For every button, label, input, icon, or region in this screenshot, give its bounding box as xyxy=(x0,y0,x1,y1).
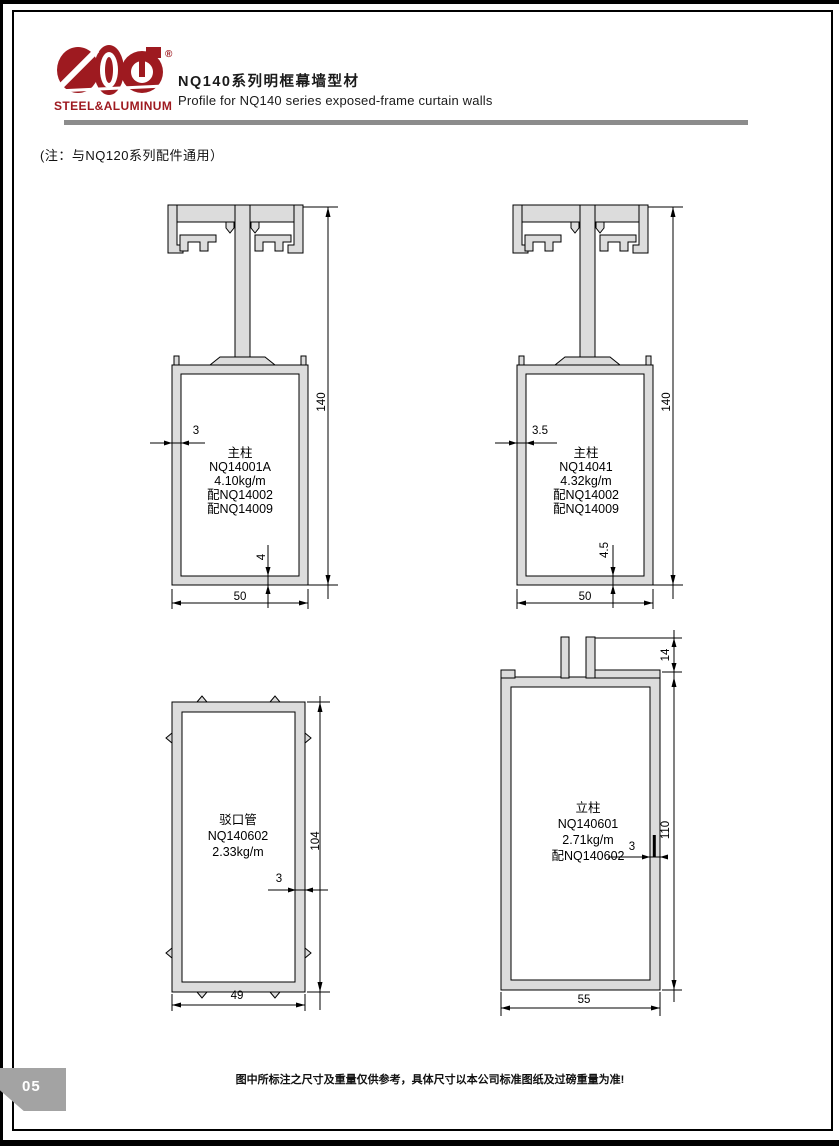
dim-bottom-wall: 4.5 xyxy=(599,542,611,558)
page-title-chinese: NQ140系列明框幕墙型材 xyxy=(178,70,359,91)
page-bottom-edge xyxy=(0,1140,839,1146)
dim-width: 50 xyxy=(579,591,592,603)
dim-tab-height: 14 xyxy=(660,649,672,662)
logo-wordmark: STEEL&ALUMINUM xyxy=(54,99,170,113)
page-top-edge xyxy=(0,0,839,4)
profile-accessory: 配NQ14002 xyxy=(207,488,273,502)
profile-weight: 2.71kg/m xyxy=(552,832,625,848)
registered-trademark-mark: ® xyxy=(165,49,172,60)
dim-wall-thickness: 3 xyxy=(629,841,635,853)
dim-wall-thickness: 3 xyxy=(276,873,282,885)
dim-height: 104 xyxy=(310,831,322,850)
compatibility-note: (注：与NQ120系列配件通用） xyxy=(40,145,224,164)
profile-weight: 4.32kg/m xyxy=(553,474,619,488)
profile-name: 驳口管 xyxy=(208,812,268,828)
profile-weight: 4.10kg/m xyxy=(207,474,273,488)
profile-name: 主柱 xyxy=(553,446,619,460)
company-logo-icon xyxy=(56,44,166,98)
dim-height: 110 xyxy=(660,821,672,839)
footer-disclaimer: 图中所标注之尺寸及重量仅供参考，具体尺寸以本公司标准图纸及过磅重量为准! xyxy=(210,1071,650,1087)
page-number: 05 xyxy=(22,1078,41,1095)
dim-width: 55 xyxy=(578,994,591,1006)
profile-accessory: 配NQ14002 xyxy=(553,488,619,502)
profile-code: NQ14041 xyxy=(553,460,619,474)
profile-code: NQ140602 xyxy=(208,828,268,844)
profile-name: 主柱 xyxy=(207,446,273,460)
profile-label-block: 驳口管 NQ140602 2.33kg/m xyxy=(208,812,268,860)
profile-label-block: 主柱 NQ14001A 4.10kg/m 配NQ14002 配NQ14009 xyxy=(207,446,273,516)
dim-height: 140 xyxy=(661,392,673,411)
page-left-edge xyxy=(0,0,3,1146)
dim-width: 49 xyxy=(231,990,244,1002)
profile-code: NQ140601 xyxy=(552,816,625,832)
dim-wall-thickness: 3.5 xyxy=(532,425,548,437)
dim-height: 140 xyxy=(316,392,328,411)
dim-wall-thickness: 3 xyxy=(193,425,199,437)
profile-label-block: 立柱 NQ140601 2.71kg/m 配NQ140602 xyxy=(552,800,625,864)
page-title-english: Profile for NQ140 series exposed-frame c… xyxy=(178,93,493,108)
profile-accessory: 配NQ14009 xyxy=(553,502,619,516)
profile-code: NQ14001A xyxy=(207,460,273,474)
dim-bottom-wall: 4 xyxy=(256,554,268,560)
profile-accessory: 配NQ140602 xyxy=(552,848,625,864)
dim-width: 50 xyxy=(234,591,247,603)
profile-accessory: 配NQ14009 xyxy=(207,502,273,516)
profile-label-block: 主柱 NQ14041 4.32kg/m 配NQ14002 配NQ14009 xyxy=(553,446,619,516)
header-divider xyxy=(64,120,748,125)
profile-weight: 2.33kg/m xyxy=(208,844,268,860)
profile-name: 立柱 xyxy=(552,800,625,816)
